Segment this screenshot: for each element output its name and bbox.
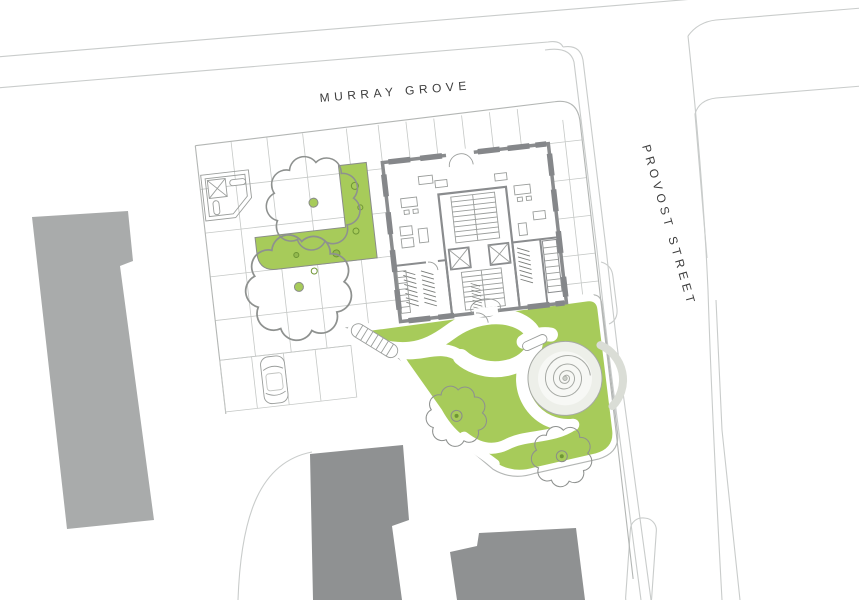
context-building-south	[310, 445, 409, 600]
murray-grove-north-kerb	[0, 0, 859, 57]
elevator-icon	[488, 243, 510, 265]
street-label-murray-grove: MURRAY GROVE	[319, 78, 471, 105]
southwest-road-curve	[238, 452, 312, 600]
bench	[213, 200, 221, 215]
furniture	[394, 163, 547, 249]
staircase-upper	[451, 192, 500, 243]
play-area	[201, 170, 254, 221]
site-plan-page: MURRAY GROVE PROVOST STREET	[0, 0, 859, 600]
street-labels: MURRAY GROVE PROVOST STREET	[319, 78, 699, 308]
parking-bays	[220, 345, 357, 412]
murray-grove-south-kerb	[0, 42, 563, 88]
parking-row	[220, 345, 357, 412]
elevator-icon	[449, 247, 471, 269]
site-plan	[195, 98, 646, 600]
planter-l-shaped	[248, 162, 378, 280]
building-floor-plan	[382, 139, 568, 332]
site-plan-canvas: MURRAY GROVE PROVOST STREET	[0, 0, 859, 600]
context-building-southeast	[450, 528, 585, 600]
street-label-provost-street: PROVOST STREET	[639, 143, 699, 308]
murray-grove-south-kerb-east	[688, 8, 859, 36]
tree-trunk-icon	[309, 198, 319, 208]
car-icon	[260, 355, 289, 404]
context-building-west	[32, 211, 154, 529]
tree-trunk-icon	[294, 282, 304, 292]
northeast-plot-line	[695, 86, 859, 258]
bench	[229, 178, 246, 186]
